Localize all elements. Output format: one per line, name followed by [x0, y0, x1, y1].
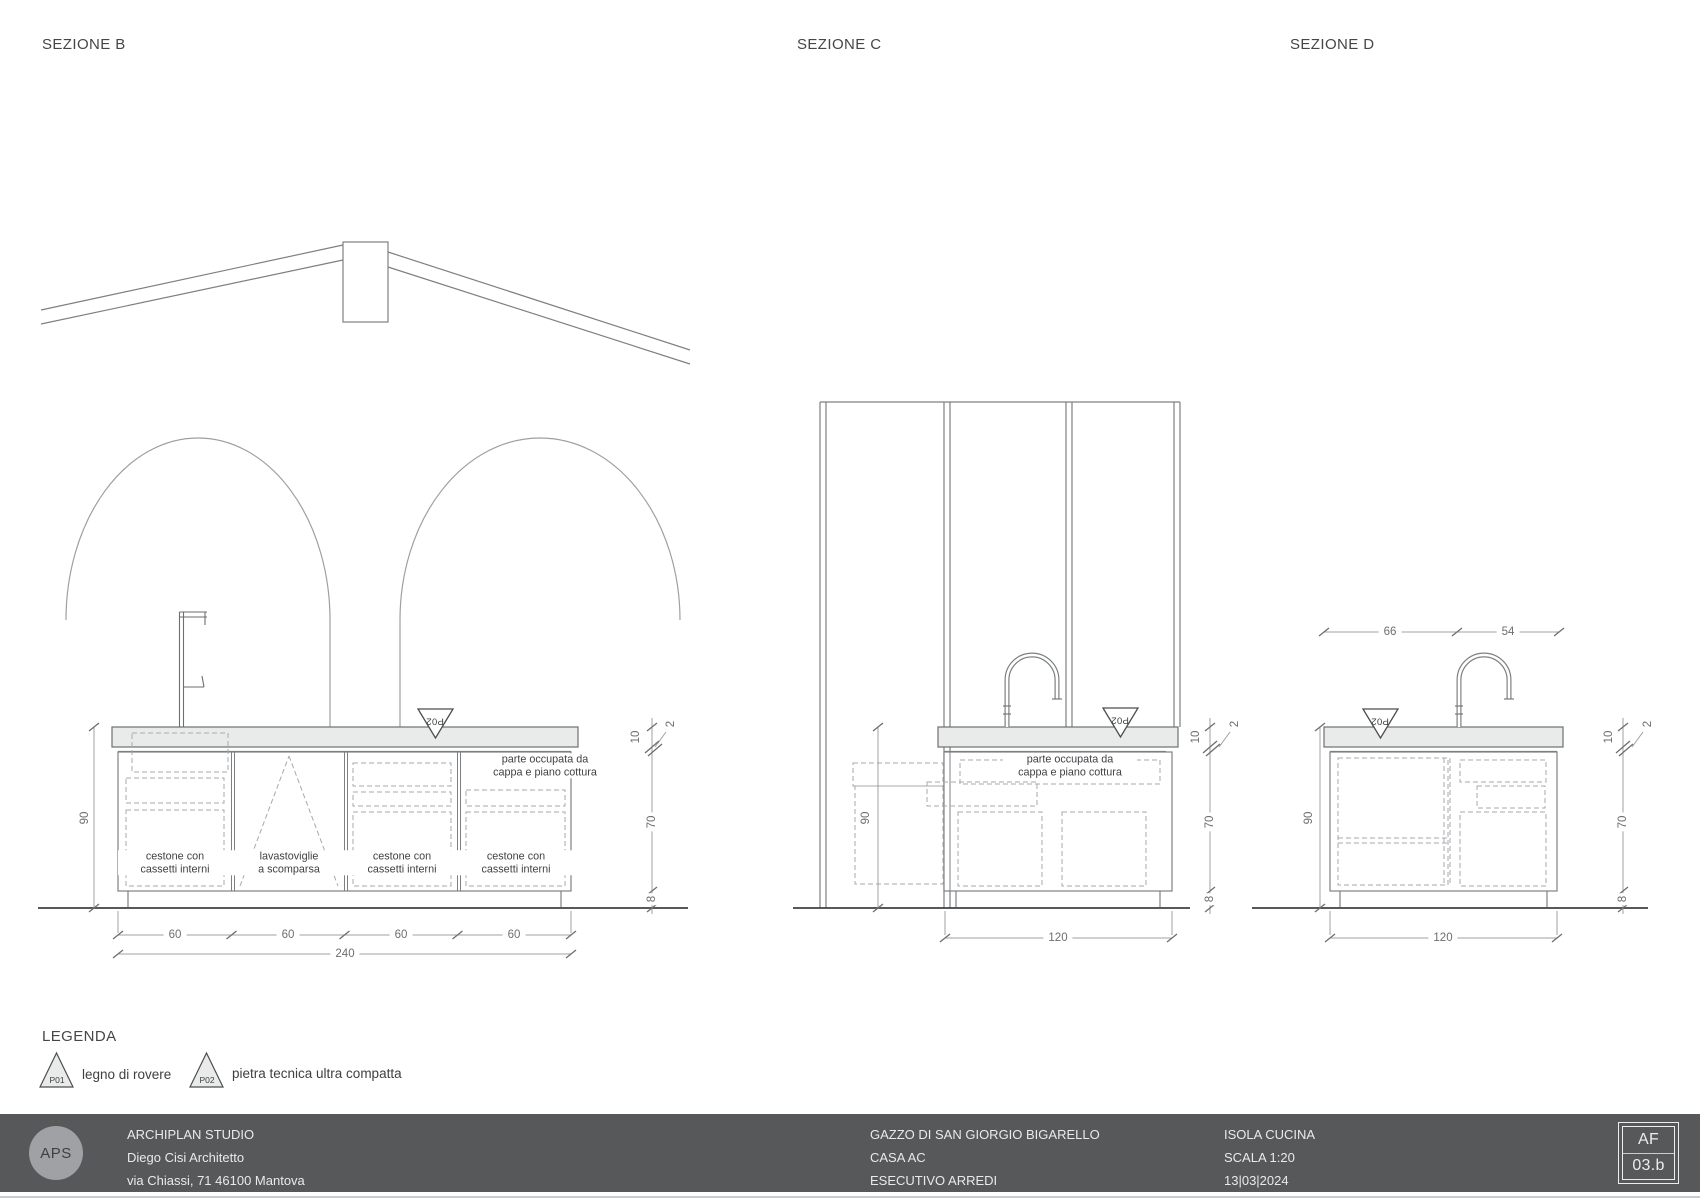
sheet-scale: SCALA 1:20 — [1224, 1146, 1315, 1169]
sheet-bottom-edge — [0, 1196, 1700, 1198]
legend-code-p02: P02 — [199, 1075, 214, 1085]
project-name: CASA AC — [870, 1146, 1100, 1169]
hood-label-b: parte occupata da cappa e piano cottura — [478, 753, 612, 778]
dim-b-top: 10 — [630, 728, 642, 747]
section-d-drawing — [1252, 628, 1648, 942]
sheet-date: 13|03|2024 — [1224, 1169, 1315, 1192]
sheet-code-number: 03.b — [1623, 1153, 1674, 1180]
module-label-1: cestone con cassetti interni — [118, 850, 232, 875]
drawing-linework — [0, 0, 1700, 1202]
dim-b-body: 70 — [646, 813, 658, 832]
section-c-title: SEZIONE C — [797, 36, 881, 53]
legend-label-p02: pietra tecnica ultra compatta — [232, 1066, 402, 1081]
legend-code-p01: P01 — [49, 1075, 64, 1085]
project-info: GAZZO DI SAN GIORGIO BIGARELLO CASA AC E… — [870, 1123, 1100, 1192]
dim-b-60-3: 60 — [390, 929, 413, 941]
sheet-title: ISOLA CUCINA — [1224, 1123, 1315, 1146]
studio-address: via Chiassi, 71 46100 Mantova — [127, 1169, 305, 1192]
dim-c-width: 120 — [1043, 932, 1072, 944]
hood-label-c: parte occupata da cappa e piano cottura — [1003, 753, 1137, 778]
dim-d-top-right: 54 — [1497, 626, 1520, 638]
dim-c-body: 70 — [1204, 813, 1216, 832]
dim-b-total: 240 — [330, 948, 359, 960]
dim-d-height: 90 — [1303, 809, 1315, 828]
architect-name: Diego Cisi Architetto — [127, 1146, 305, 1169]
dim-d-top-left: 66 — [1379, 626, 1402, 638]
dim-b-height: 90 — [79, 809, 91, 828]
aps-logo: APS — [29, 1126, 83, 1180]
legend-heading: LEGENDA — [42, 1028, 117, 1045]
dim-d-width: 120 — [1428, 932, 1457, 944]
sheet-code-box: AF 03.b — [1618, 1122, 1679, 1184]
module-label-2: lavastoviglie a scomparsa — [232, 850, 346, 875]
dim-b-60-1: 60 — [164, 929, 187, 941]
dim-c-edge: 2 — [1229, 718, 1241, 730]
dim-d-plinth: 8 — [1617, 893, 1629, 905]
material-marker-d: P02 — [1371, 716, 1389, 727]
studio-info: ARCHIPLAN STUDIO Diego Cisi Architetto v… — [127, 1123, 305, 1192]
studio-name: ARCHIPLAN STUDIO — [127, 1123, 305, 1146]
dim-b-plinth: 8 — [646, 893, 658, 905]
section-d-title: SEZIONE D — [1290, 36, 1374, 53]
dim-d-edge: 2 — [1642, 718, 1654, 730]
module-label-3: cestone con cassetti interni — [345, 850, 459, 875]
dim-c-top: 10 — [1190, 728, 1202, 747]
section-c-drawing — [793, 402, 1230, 942]
dim-b-60-2: 60 — [277, 929, 300, 941]
title-block: APS ARCHIPLAN STUDIO Diego Cisi Architet… — [0, 1114, 1700, 1192]
drawing-sheet: SEZIONE B P02 parte occupata da cappa e … — [0, 0, 1700, 1202]
dim-d-top: 10 — [1603, 728, 1615, 747]
project-phase: ESECUTIVO ARREDI — [870, 1169, 1100, 1192]
material-marker-b: P02 — [426, 716, 444, 727]
section-b-title: SEZIONE B — [42, 36, 126, 53]
legend-label-p01: legno di rovere — [82, 1067, 171, 1082]
dim-d-body: 70 — [1617, 813, 1629, 832]
material-marker-c: P02 — [1111, 715, 1129, 726]
dim-b-edge: 2 — [665, 718, 677, 730]
sheet-info: ISOLA CUCINA SCALA 1:20 13|03|2024 — [1224, 1123, 1315, 1192]
dim-c-plinth: 8 — [1204, 893, 1216, 905]
dim-b-60-4: 60 — [503, 929, 526, 941]
module-label-4: cestone con cassetti interni — [459, 850, 573, 875]
project-location: GAZZO DI SAN GIORGIO BIGARELLO — [870, 1123, 1100, 1146]
dim-c-height: 90 — [860, 809, 872, 828]
sheet-code-series: AF — [1623, 1127, 1674, 1153]
